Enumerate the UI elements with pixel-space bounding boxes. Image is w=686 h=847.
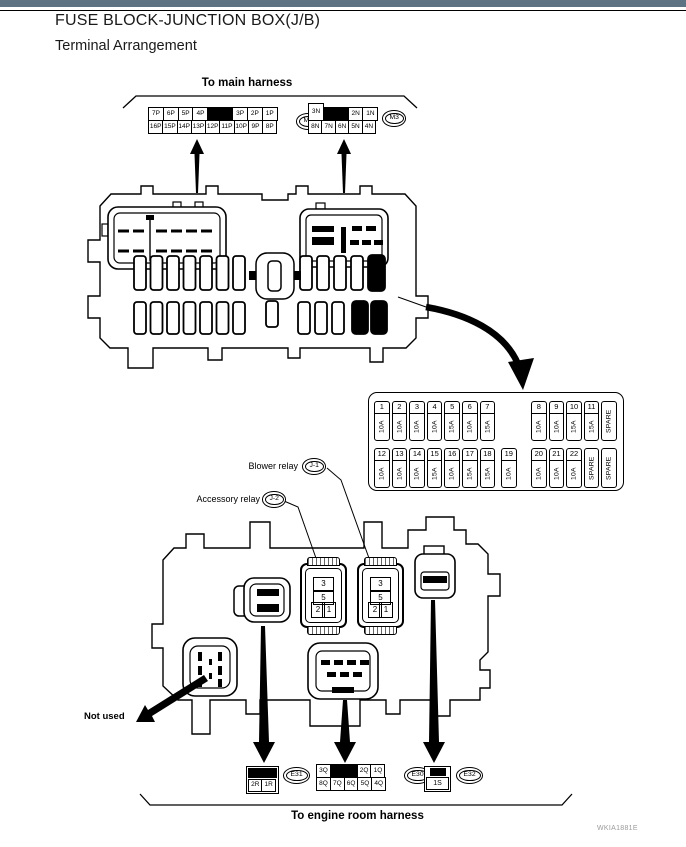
fuse-cell-5: 515A xyxy=(444,401,460,441)
fuse-amp-rating: 15A xyxy=(463,461,477,487)
m3-pointer-arrow xyxy=(337,139,351,193)
fuse-amp-rating: SPARE xyxy=(602,449,616,487)
pin-4q: 4Q xyxy=(371,777,386,791)
fuse-amp-rating: 15A xyxy=(567,414,581,440)
badge-e32-label: E32 xyxy=(459,770,481,782)
badge-j2: J-2 xyxy=(262,491,286,508)
relay-pin-1: 1 xyxy=(379,602,393,618)
m3-row-top: 3N2N1N xyxy=(308,103,378,121)
m4-row-bottom: 16P15P14P13P12P11P10P9P8P xyxy=(148,120,278,134)
fuse-spare-cell: SPARE xyxy=(601,448,617,488)
manual-page: FUSE BLOCK-JUNCTION BOX(J/B) Terminal Ar… xyxy=(0,0,686,847)
connector-e30: 3Q2Q1Q 8Q7Q6Q5Q4Q xyxy=(316,764,386,791)
pin-1s: 1S xyxy=(426,777,449,790)
pin-7n: 7N xyxy=(321,120,336,134)
e31-blank-block xyxy=(248,768,277,778)
fuse-number: 3 xyxy=(410,402,424,414)
fuse-row1-right: 810A910A1015A1115ASPARE xyxy=(531,401,617,441)
pin-11p: 11P xyxy=(219,120,234,134)
m3-row-bottom: 8N7N6N5N4N xyxy=(308,120,378,134)
pin-1r: 1R xyxy=(261,779,276,792)
fuse-amp-rating: 15A xyxy=(445,414,459,440)
badge-m3: M3 xyxy=(382,110,406,127)
fuse-number: 4 xyxy=(428,402,442,414)
badge-j1: J-1 xyxy=(302,458,326,475)
fuse-amp-rating: 10A xyxy=(375,461,389,487)
fuse-cell-17: 1715A xyxy=(462,448,478,488)
fuse-amp-rating: 10A xyxy=(393,461,407,487)
pin-14p: 14P xyxy=(177,120,192,134)
pin-10p: 10P xyxy=(234,120,249,134)
fuse-number: 19 xyxy=(502,449,516,461)
fuse-number: 1 xyxy=(375,402,389,414)
fuse-cell-6: 610A xyxy=(462,401,478,441)
fuse-cell-7: 715A xyxy=(480,401,496,441)
lower-right-plug xyxy=(415,546,455,598)
fuse-table: 110A210A310A410A515A610A715A 810A910A101… xyxy=(368,392,624,491)
pin-8q: 8Q xyxy=(316,777,331,791)
connector-e31: 2R1R xyxy=(246,766,279,794)
fuse-cell-13: 1310A xyxy=(392,448,408,488)
fuse-amp-rating: SPARE xyxy=(602,402,616,440)
fuse-amp-rating: 10A xyxy=(550,461,564,487)
fuse-number: 12 xyxy=(375,449,389,461)
relay-pin-3: 3 xyxy=(313,577,334,591)
relay-pin-3: 3 xyxy=(370,577,391,591)
connector-m3: 3N2N1N 8N7N6N5N4N xyxy=(308,103,378,134)
fuse-number: 6 xyxy=(463,402,477,414)
figure-code-watermark: WKIA1881E xyxy=(597,825,638,832)
fuse-cell-20: 2010A xyxy=(531,448,547,488)
fuse-number: 15 xyxy=(428,449,442,461)
fuse-number: 22 xyxy=(567,449,581,461)
lower-left-plug xyxy=(234,578,290,622)
engine-room-bracket xyxy=(140,794,572,805)
e32-blank-block xyxy=(430,768,446,776)
pin-5n: 5N xyxy=(348,120,363,134)
e32-pin-row: 1S xyxy=(426,777,449,790)
fuse-row2-mid: 1910A xyxy=(501,448,517,488)
relay-pin-1: 1 xyxy=(322,602,336,618)
fuse-table-arrow xyxy=(398,297,534,390)
fuse-amp-rating: 10A xyxy=(410,414,424,440)
fuse-amp-rating: 10A xyxy=(502,461,516,487)
pin-2r: 2R xyxy=(248,779,263,792)
fuse-spare-cell: SPARE xyxy=(584,448,600,488)
not-used-label: Not used xyxy=(84,711,125,722)
fuse-cell-4: 410A xyxy=(427,401,443,441)
pin-8n: 8N xyxy=(308,120,323,134)
fuse-number: 13 xyxy=(393,449,407,461)
fuse-cell-18: 1815A xyxy=(480,448,496,488)
badge-e31: E31 xyxy=(283,767,310,784)
fuse-cell-9: 910A xyxy=(549,401,565,441)
fuse-amp-rating: 15A xyxy=(428,461,442,487)
fuse-number: 2 xyxy=(393,402,407,414)
fuse-cell-8: 810A xyxy=(531,401,547,441)
pin-3n: 3N xyxy=(308,103,324,121)
badge-j2-label: J-2 xyxy=(265,494,284,506)
fuse-cell-10: 1015A xyxy=(566,401,582,441)
blower-relay-label: Blower relay xyxy=(230,461,298,471)
pin-8p: 8P xyxy=(262,120,277,134)
fuse-number: 5 xyxy=(445,402,459,414)
to-engine-room-harness-label: To engine room harness xyxy=(280,810,435,822)
pin-7q: 7Q xyxy=(330,777,345,791)
fuse-number: 7 xyxy=(481,402,495,414)
e31-pin-row: 2R1R xyxy=(248,779,277,792)
m4-pointer-arrow xyxy=(190,139,204,193)
fuse-number: 20 xyxy=(532,449,546,461)
fuse-amp-rating: 15A xyxy=(481,461,495,487)
pin-15p: 15P xyxy=(162,120,177,134)
pin-6q: 6Q xyxy=(344,777,359,791)
fuse-amp-rating: SPARE xyxy=(585,449,599,487)
to-main-harness-label: To main harness xyxy=(165,77,329,89)
relay-flange xyxy=(364,626,397,635)
relay-accessory: 3 5 2 1 xyxy=(300,563,347,628)
fuse-cell-16: 1610A xyxy=(444,448,460,488)
fuse-number: 14 xyxy=(410,449,424,461)
fuse-amp-rating: 10A xyxy=(567,461,581,487)
fuse-cell-3: 310A xyxy=(409,401,425,441)
badge-j1-label: J-1 xyxy=(305,461,324,473)
fuse-cell-14: 1410A xyxy=(409,448,425,488)
pin-4n: 4N xyxy=(362,120,377,134)
fuse-row2-left: 1210A1310A1410A1515A1610A1715A1815A xyxy=(374,448,495,488)
e32-arrow xyxy=(423,600,445,763)
pin-6n: 6N xyxy=(335,120,350,134)
fuse-amp-rating: 10A xyxy=(393,414,407,440)
relay-blower: 3 5 2 1 xyxy=(357,563,404,628)
fuse-amp-rating: 10A xyxy=(410,461,424,487)
fuse-spare-cell: SPARE xyxy=(601,401,617,441)
pin-5q: 5Q xyxy=(357,777,372,791)
fuse-amp-rating: 15A xyxy=(585,414,599,440)
fuse-row1-left: 110A210A310A410A515A610A715A xyxy=(374,401,495,441)
accessory-relay-label: Accessory relay xyxy=(188,494,260,504)
relay-flange xyxy=(364,557,397,566)
fuse-amp-rating: 10A xyxy=(463,414,477,440)
badge-m3-label: M3 xyxy=(385,113,404,125)
fuse-row2-right: 2010A2110A2210ASPARESPARE xyxy=(531,448,617,488)
fuse-cell-15: 1515A xyxy=(427,448,443,488)
fuse-amp-rating: 10A xyxy=(550,414,564,440)
fuse-number: 11 xyxy=(585,402,599,414)
connector-e32: 1S xyxy=(424,766,451,792)
fuse-cell-22: 2210A xyxy=(566,448,582,488)
center-terminal xyxy=(249,253,301,299)
fuse-cell-19: 1910A xyxy=(501,448,517,488)
fuse-cell-21: 2110A xyxy=(549,448,565,488)
fuse-cell-1: 110A xyxy=(374,401,390,441)
fuse-amp-rating: 10A xyxy=(532,461,546,487)
fuse-cell-2: 210A xyxy=(392,401,408,441)
fuse-number: 17 xyxy=(463,449,477,461)
fuse-cell-11: 1115A xyxy=(584,401,600,441)
fuse-number: 16 xyxy=(445,449,459,461)
bottom-middle-connector xyxy=(308,643,378,699)
e30-row-bottom: 8Q7Q6Q5Q4Q xyxy=(316,777,386,791)
badge-e32: E32 xyxy=(456,767,483,784)
e31-arrow xyxy=(253,626,275,763)
fuse-number: 10 xyxy=(567,402,581,414)
fuse-amp-rating: 10A xyxy=(375,414,389,440)
pin-13p: 13P xyxy=(191,120,206,134)
fuse-number: 21 xyxy=(550,449,564,461)
relay-leader-lines xyxy=(284,468,370,561)
fuse-cell-12: 1210A xyxy=(374,448,390,488)
connector-m4: 7P6P5P4P3P2P1P 16P15P14P13P12P11P10P9P8P xyxy=(148,107,278,134)
fuse-amp-rating: 15A xyxy=(481,414,495,440)
relay-flange xyxy=(307,557,340,566)
e30-arrow xyxy=(334,700,356,763)
fuse-number: 9 xyxy=(550,402,564,414)
pin-12p: 12P xyxy=(205,120,220,134)
not-used-arrow xyxy=(136,675,208,722)
fuse-amp-rating: 10A xyxy=(532,414,546,440)
fuse-slots-row2 xyxy=(134,301,387,334)
fuse-amp-rating: 10A xyxy=(428,414,442,440)
fuse-number: 18 xyxy=(481,449,495,461)
pin-9p: 9P xyxy=(248,120,263,134)
fuse-number: 8 xyxy=(532,402,546,414)
relay-flange xyxy=(307,626,340,635)
fuse-amp-rating: 10A xyxy=(445,461,459,487)
badge-e31-label: E31 xyxy=(286,770,308,782)
pin-16p: 16P xyxy=(148,120,163,134)
